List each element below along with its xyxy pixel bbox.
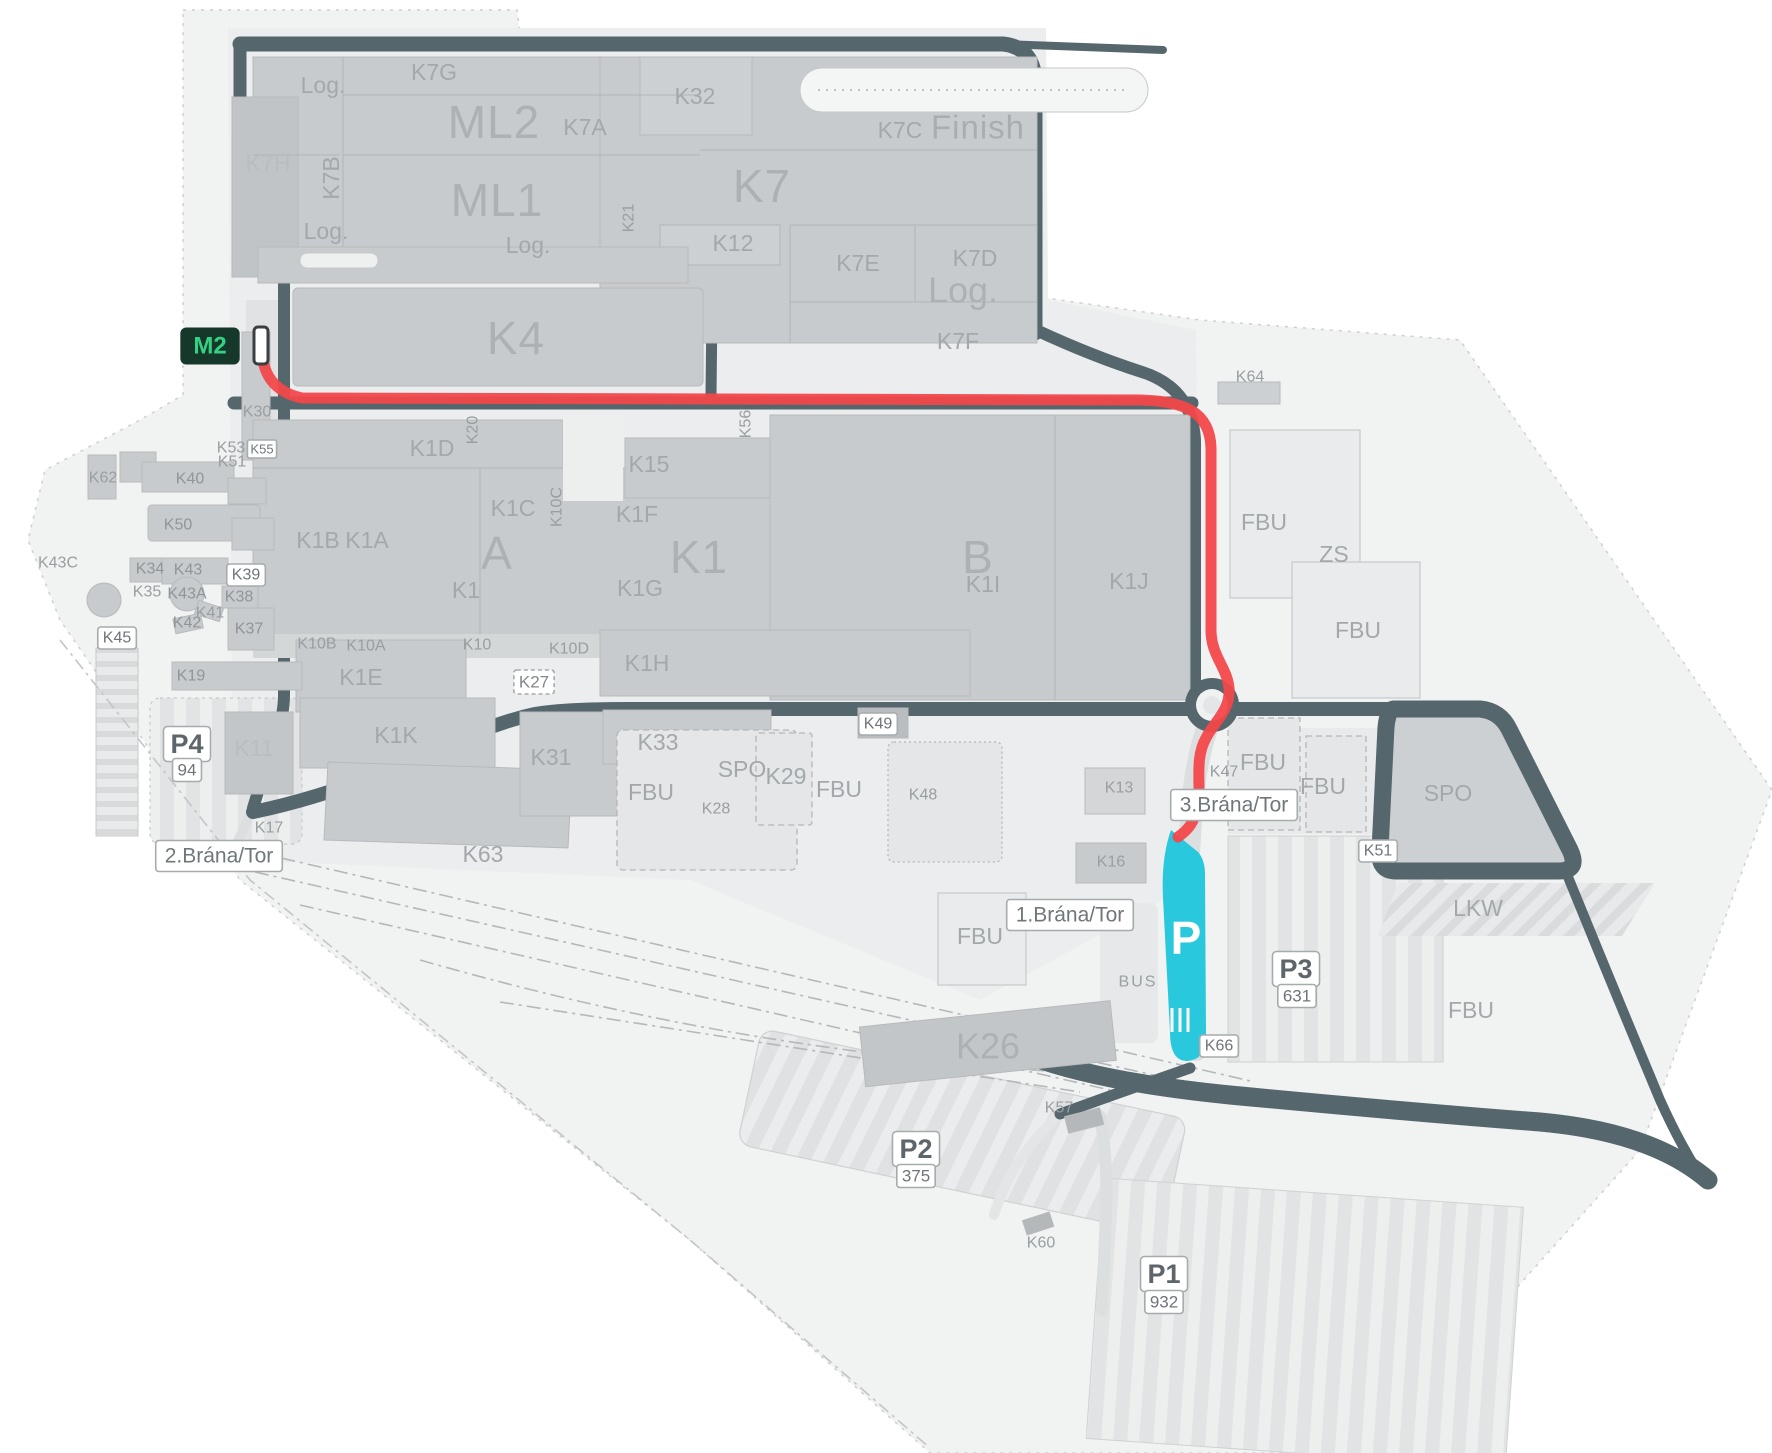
badge-m2: M2 — [193, 333, 226, 360]
label-k10b: K10B — [297, 636, 336, 653]
label-k1k: K1K — [374, 722, 418, 748]
label-spo-center: SPO — [718, 756, 767, 782]
label-p4-count: 94 — [178, 761, 197, 780]
label-fbu-6: FBU — [1240, 749, 1286, 775]
label-k7g: K7G — [411, 59, 457, 85]
label-finish: Finish — [931, 109, 1025, 146]
label-k35: K35 — [133, 584, 162, 601]
label-k1f: K1F — [616, 501, 658, 527]
label-k62: K62 — [89, 470, 118, 487]
label-k7: K7 — [733, 160, 791, 212]
label-k1-big: K1 — [670, 531, 728, 583]
label-spo-right: SPO — [1424, 780, 1473, 806]
label-k56: K56 — [738, 410, 755, 439]
label-k57: K57 — [1045, 1100, 1074, 1117]
label-k15: K15 — [629, 451, 670, 477]
label-p1-count: 932 — [1150, 1293, 1178, 1312]
gate-2-brana-tor: 2.Brána/Tor — [165, 845, 274, 868]
label-k1g: K1G — [617, 575, 663, 601]
site-map: Log.K7GML2K7AK32K7CFinishK7HK7BML1K7Log.… — [0, 0, 1772, 1453]
label-k11: K11 — [234, 735, 273, 761]
label-p1: P1 — [1147, 1259, 1180, 1289]
finish-strip — [800, 68, 1148, 112]
label-k49: K49 — [864, 716, 893, 733]
label-k20: K20 — [465, 416, 482, 445]
label-p4: P4 — [170, 729, 203, 759]
m2-location-marker — [254, 327, 268, 364]
label-k42: K42 — [173, 615, 202, 632]
label-k7b: K7B — [318, 156, 344, 199]
label-k1e: K1E — [339, 664, 382, 690]
label-k26: K26 — [956, 1026, 1020, 1067]
label-k1i: K1I — [966, 571, 1001, 597]
parking-comb — [96, 648, 138, 836]
label-k47: K47 — [1210, 764, 1239, 781]
label-p2-count: 375 — [902, 1167, 930, 1186]
label-k7a: K7A — [563, 114, 607, 140]
label-k43: K43 — [174, 562, 203, 579]
label-k7c: K7C — [878, 117, 923, 143]
label-k13: K13 — [1105, 780, 1134, 797]
label-p3-count: 631 — [1283, 987, 1311, 1006]
label-k16: K16 — [1097, 854, 1126, 871]
label-k48: K48 — [909, 787, 938, 804]
label-fbu-1: FBU — [628, 779, 674, 805]
map-stage: Log.K7GML2K7AK32K7CFinishK7HK7BML1K7Log.… — [0, 0, 1772, 1453]
label-fbu-2: FBU — [816, 776, 862, 802]
label-k12: K12 — [713, 230, 754, 256]
label-k7f: K7F — [937, 328, 979, 354]
label-p2: P2 — [899, 1134, 932, 1164]
gate-1-brana-tor: 1.Brána/Tor — [1016, 904, 1125, 927]
label-k60: K60 — [1027, 1235, 1056, 1252]
label-k4: K4 — [487, 312, 545, 364]
label-k28: K28 — [702, 801, 731, 818]
parking-lkw-area — [1378, 883, 1655, 936]
label-k40: K40 — [176, 471, 205, 488]
label-k31: K31 — [531, 744, 572, 770]
label-parking-p: P — [1171, 912, 1202, 964]
label-k50: K50 — [164, 517, 193, 534]
label-k21: K21 — [621, 204, 638, 233]
label-k17: K17 — [255, 820, 284, 837]
parking-p1-area — [1086, 1178, 1523, 1453]
label-k1h: K1H — [625, 650, 670, 676]
label-k37: K37 — [235, 621, 264, 638]
label-k43a: K43A — [167, 586, 206, 603]
label-k39: K39 — [232, 567, 261, 584]
label-k34: K34 — [136, 561, 165, 578]
label-k43c: K43C — [38, 555, 78, 572]
label-a: A — [481, 527, 513, 579]
label-k38: K38 — [225, 589, 254, 606]
label-k19: K19 — [177, 668, 206, 685]
building-k43b — [87, 583, 121, 617]
label-k30: K30 — [243, 404, 272, 421]
label-fbu-3: FBU — [957, 923, 1003, 949]
label-k64: K64 — [1236, 369, 1265, 386]
label-k51-left: K51 — [218, 454, 247, 471]
label-k63: K63 — [463, 841, 504, 867]
label-fbu-5: FBU — [1335, 617, 1381, 643]
label-k10c: K10C — [549, 487, 566, 527]
label-k1d: K1D — [410, 435, 455, 461]
label-log-topleft: Log. — [301, 72, 346, 98]
label-k27: K27 — [519, 673, 549, 692]
label-fbu-8: FBU — [1448, 997, 1494, 1023]
label-k55: K55 — [250, 442, 273, 457]
building-k52 — [228, 478, 266, 504]
label-lkw: LKW — [1453, 895, 1503, 921]
label-bus: BUS — [1119, 974, 1158, 991]
label-k33: K33 — [638, 729, 679, 755]
label-k66: K66 — [1205, 1038, 1234, 1055]
label-zs: ZS — [1319, 541, 1348, 567]
label-k32: K32 — [675, 83, 716, 109]
label-fbu-4: FBU — [1241, 509, 1287, 535]
label-k29: K29 — [766, 763, 807, 789]
label-k10d: K10D — [549, 641, 589, 658]
building-k24 — [232, 518, 274, 550]
label-k45: K45 — [103, 630, 132, 647]
label-k10: K10 — [463, 637, 492, 654]
label-log-center: Log. — [506, 232, 551, 258]
label-k1-sub: K1 — [452, 577, 480, 603]
zone-k48 — [888, 742, 1002, 862]
label-ml1: ML1 — [451, 174, 543, 226]
label-log-k7d: Log. — [928, 270, 998, 311]
label-k10a: K10A — [346, 638, 385, 655]
gate-3-brana-tor: 3.Brána/Tor — [1180, 794, 1289, 817]
label-fbu-7: FBU — [1300, 773, 1346, 799]
label-ml2: ML2 — [448, 96, 540, 148]
label-k1j: K1J — [1109, 568, 1149, 594]
label-k7h: K7H — [246, 150, 291, 176]
label-k1a: K1A — [345, 527, 389, 553]
label-k7d: K7D — [953, 245, 998, 271]
label-k7e: K7E — [836, 250, 879, 276]
label-k1b: K1B — [296, 527, 339, 553]
label-k1c: K1C — [491, 495, 536, 521]
label-k51-right: K51 — [1364, 843, 1393, 860]
label-log-midleft: Log. — [304, 218, 349, 244]
label-p3: P3 — [1279, 954, 1312, 984]
